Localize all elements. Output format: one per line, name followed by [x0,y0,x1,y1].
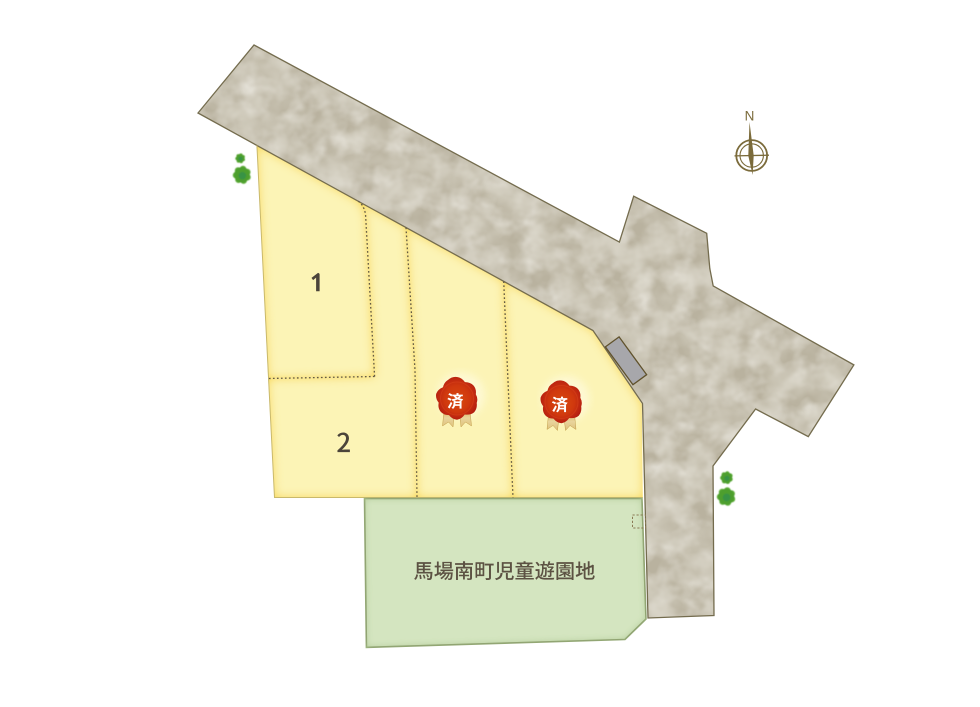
svg-text:N: N [745,109,755,124]
